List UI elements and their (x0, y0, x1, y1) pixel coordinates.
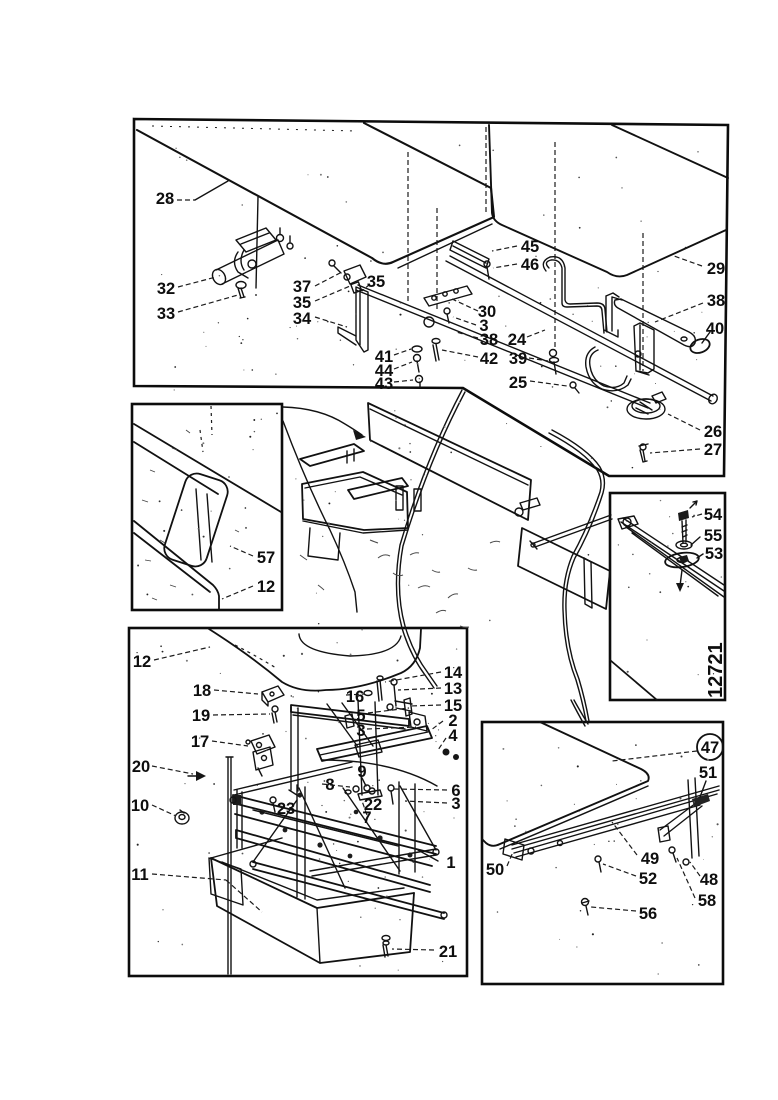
svg-text:52: 52 (639, 870, 657, 888)
svg-text:18: 18 (193, 682, 211, 700)
svg-text:3: 3 (451, 795, 460, 813)
svg-text:10: 10 (131, 797, 149, 815)
svg-text:50: 50 (486, 861, 504, 879)
svg-text:19: 19 (192, 707, 210, 725)
svg-text:35: 35 (367, 273, 385, 291)
svg-text:57: 57 (257, 549, 275, 567)
svg-text:33: 33 (157, 305, 175, 323)
svg-text:49: 49 (641, 850, 659, 868)
svg-text:58: 58 (698, 892, 716, 910)
svg-text:55: 55 (704, 527, 722, 545)
svg-text:1: 1 (446, 854, 455, 872)
svg-text:51: 51 (699, 764, 717, 782)
svg-text:8: 8 (325, 776, 334, 794)
svg-text:27: 27 (704, 441, 722, 459)
svg-text:24: 24 (508, 331, 527, 349)
svg-text:48: 48 (700, 871, 718, 889)
svg-text:25: 25 (509, 374, 527, 392)
svg-text:28: 28 (156, 190, 174, 208)
svg-text:3: 3 (356, 722, 365, 740)
svg-text:45: 45 (521, 238, 539, 256)
svg-text:34: 34 (293, 310, 312, 328)
svg-text:38: 38 (480, 331, 498, 349)
svg-text:12: 12 (133, 653, 151, 671)
svg-text:23: 23 (277, 800, 295, 818)
svg-text:53: 53 (705, 545, 723, 563)
svg-text:20: 20 (132, 758, 150, 776)
svg-text:11: 11 (131, 866, 148, 884)
svg-text:17: 17 (191, 733, 209, 751)
svg-text:9: 9 (357, 763, 366, 781)
svg-text:21: 21 (439, 943, 457, 961)
svg-text:7: 7 (362, 809, 371, 827)
svg-text:39: 39 (509, 350, 527, 368)
svg-text:26: 26 (704, 423, 722, 441)
svg-text:46: 46 (521, 256, 539, 274)
svg-text:56: 56 (639, 905, 657, 923)
svg-text:12721: 12721 (705, 642, 727, 698)
svg-text:40: 40 (706, 320, 724, 338)
svg-text:12: 12 (257, 578, 275, 596)
svg-text:29: 29 (707, 260, 725, 278)
svg-text:54: 54 (704, 506, 723, 524)
svg-text:47: 47 (701, 739, 719, 757)
svg-text:42: 42 (480, 350, 498, 368)
svg-text:4: 4 (448, 727, 458, 745)
svg-text:38: 38 (707, 292, 725, 310)
svg-text:32: 32 (157, 280, 175, 298)
svg-text:43: 43 (375, 375, 393, 393)
svg-text:13: 13 (444, 680, 462, 698)
svg-text:16: 16 (346, 688, 364, 706)
